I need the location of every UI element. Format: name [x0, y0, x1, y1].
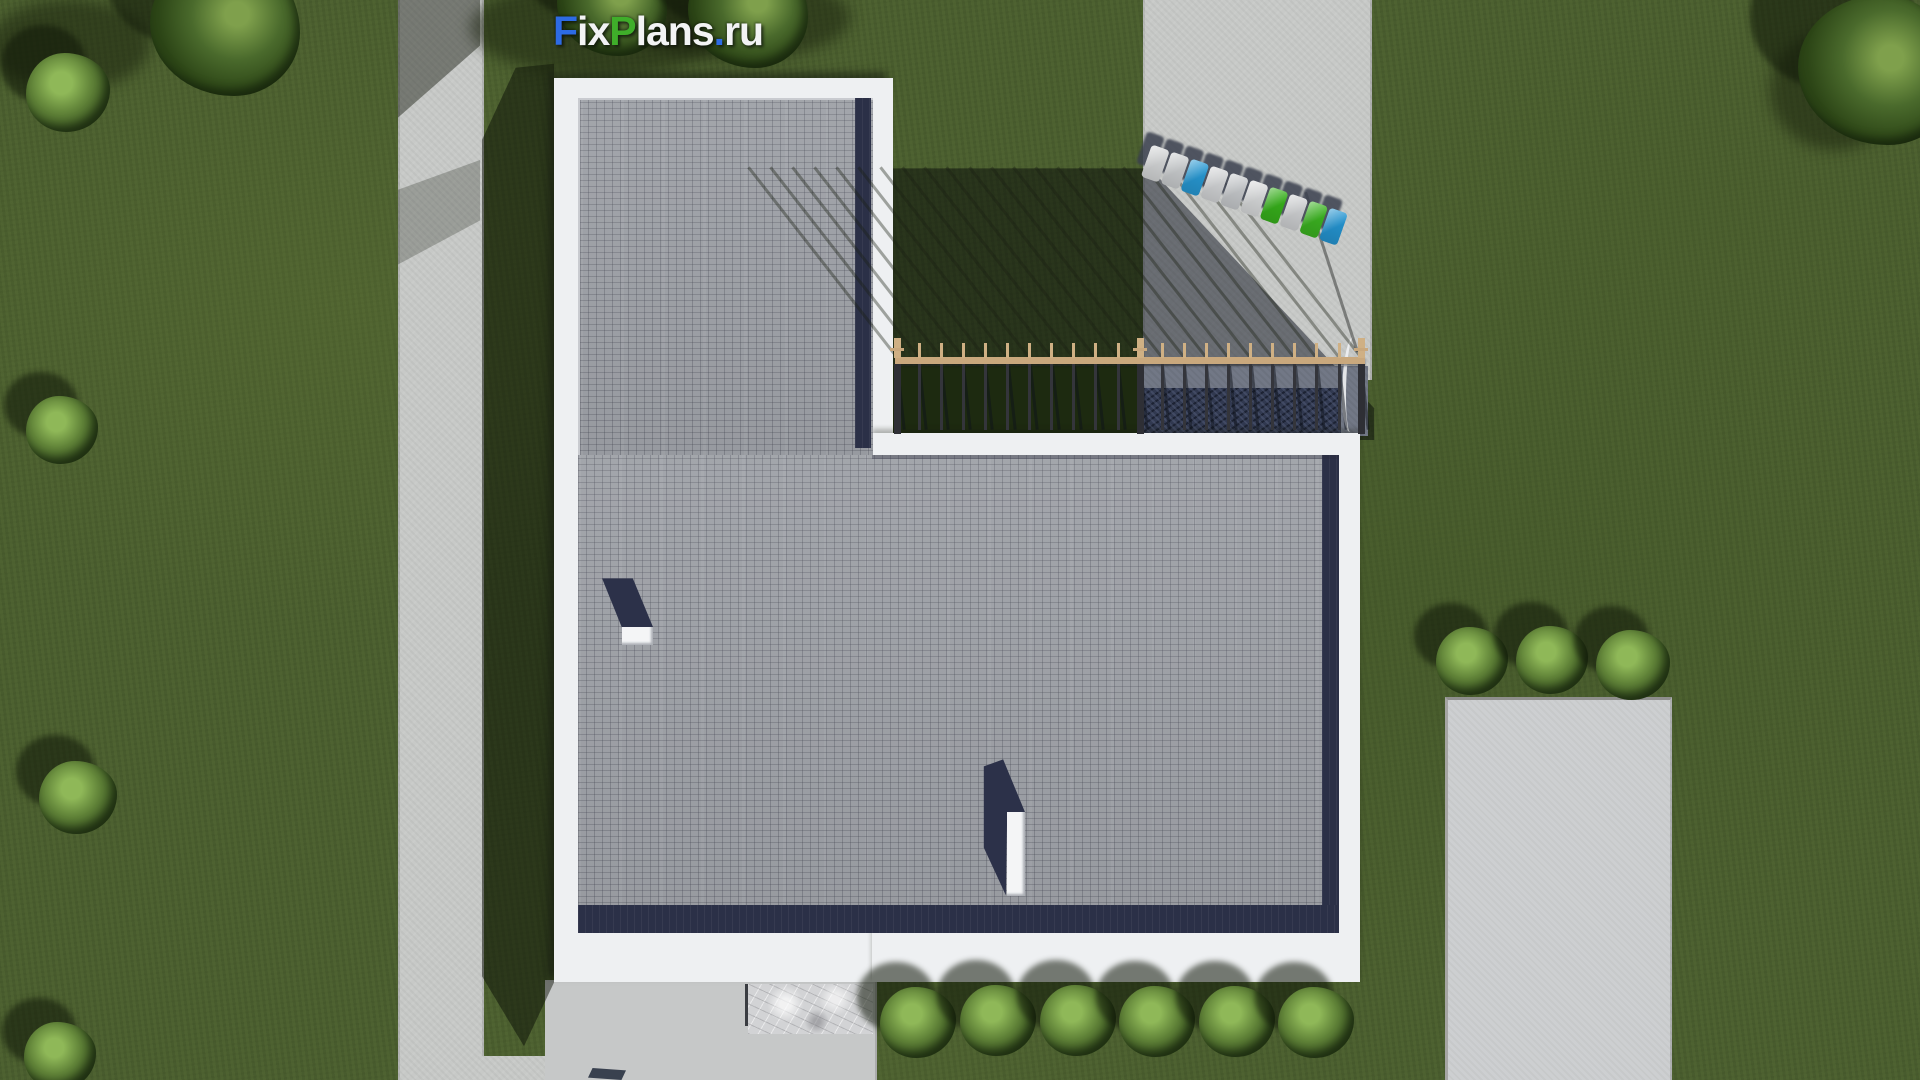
fence-post-ornament — [1133, 348, 1147, 351]
fence-main-post — [1137, 364, 1144, 434]
parapet-shadow-right-lower — [1322, 455, 1339, 905]
fence-post — [1249, 364, 1252, 430]
fence-post-top — [1205, 343, 1208, 358]
logo-letter-group: lans — [636, 8, 714, 54]
fence-post-ornament — [1354, 348, 1368, 351]
logo-letter-group: ru — [724, 8, 763, 54]
fence-post — [962, 364, 965, 430]
tree-canopy — [150, 0, 300, 96]
aerial-render-scene: FixPlans.ru — [0, 0, 1920, 1080]
fence-post — [1338, 364, 1341, 430]
bush — [39, 761, 117, 834]
bush — [1596, 630, 1670, 700]
fence-rail — [895, 357, 1365, 364]
logo-letter-group: . — [714, 8, 724, 54]
fence-post-top — [1028, 343, 1031, 358]
fence-post — [984, 364, 987, 430]
logo-letter-group: ix — [577, 8, 609, 54]
fence-post-top — [1227, 343, 1230, 358]
bush — [1278, 987, 1354, 1058]
fence-post-top — [1315, 343, 1318, 358]
bush — [24, 1022, 96, 1080]
fence-post-top — [1183, 343, 1186, 358]
left-concrete-path — [398, 0, 484, 1080]
parapet-shadow-right-upper — [855, 98, 871, 448]
roof-pavers-lower — [578, 455, 1339, 933]
fence-post — [1050, 364, 1053, 430]
fence-main-post — [894, 364, 901, 434]
bush — [26, 53, 110, 132]
fence-post — [1161, 364, 1164, 430]
fence-post — [1315, 364, 1318, 430]
fence-post — [1006, 364, 1009, 430]
fence-post — [1094, 364, 1097, 430]
fence-post-top — [1293, 343, 1296, 358]
fence-post — [1227, 364, 1230, 430]
fence-post — [918, 364, 921, 430]
logo-letter-group: P — [609, 8, 635, 54]
chimney — [622, 627, 653, 645]
parapet-shadow-bottom — [578, 905, 1339, 933]
hedge-row — [1143, 388, 1341, 434]
stone-patch-edge — [745, 984, 748, 1026]
fence-post-top — [1161, 343, 1164, 358]
fence-post-top — [918, 343, 921, 358]
fence-post — [1072, 364, 1075, 430]
fence-post-top — [1271, 343, 1274, 358]
logo-letter-group: F — [553, 8, 577, 54]
fence-post-top — [1006, 343, 1009, 358]
shaded-grass-strip — [893, 366, 1143, 436]
fence-post — [1205, 364, 1208, 430]
parapet-band-underline — [872, 455, 1339, 459]
fence-post-top — [984, 343, 987, 358]
fence-post-top — [1094, 343, 1097, 358]
stone-tile-patch — [748, 984, 873, 1034]
fence-post-ornament — [890, 348, 904, 351]
fixplans-logo: FixPlans.ru — [553, 8, 763, 55]
bush — [26, 396, 98, 464]
fence-post-top — [1050, 343, 1053, 358]
roof-pavers-upper — [578, 98, 873, 457]
bottom-right-concrete-pad — [1445, 697, 1672, 1080]
wall-stub — [1007, 812, 1025, 896]
fence-post — [1271, 364, 1274, 430]
fence-post-top — [1338, 343, 1341, 358]
fence-post — [940, 364, 943, 430]
fence-post-top — [962, 343, 965, 358]
fence-post — [1117, 364, 1120, 430]
fence-post — [1028, 364, 1031, 430]
fence-post — [1183, 364, 1186, 430]
fence-post — [1293, 364, 1296, 430]
fence-post-top — [1249, 343, 1252, 358]
fence-post-top — [1072, 343, 1075, 358]
fence-main-post — [1358, 364, 1365, 434]
fence-post-top — [940, 343, 943, 358]
fence-post-top — [1117, 343, 1120, 358]
